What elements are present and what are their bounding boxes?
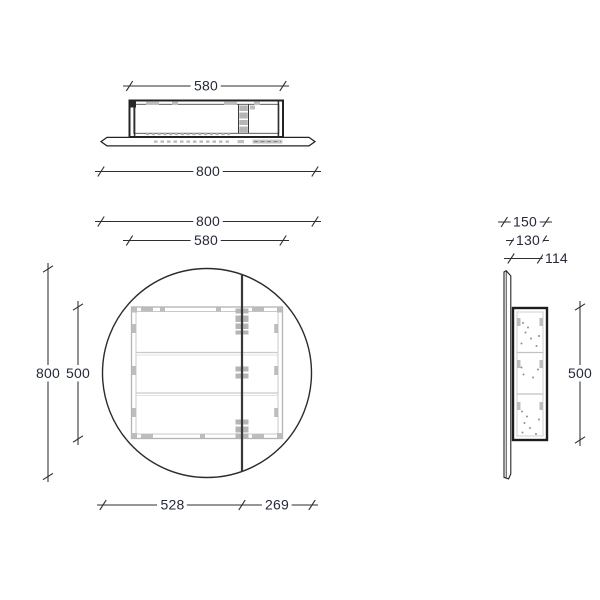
corner-fitting <box>277 433 283 439</box>
wall-fitting <box>540 318 544 326</box>
wall-fitting <box>224 102 237 105</box>
dim-side-depth-overall: 150 <box>498 214 552 230</box>
wall-fitting <box>160 307 165 311</box>
hinge-block <box>239 106 248 112</box>
top-view-cabinet-body <box>130 101 284 138</box>
side-view: 150 130 114 <box>498 214 592 479</box>
wall-fitting <box>254 102 260 105</box>
wall-fitting <box>274 366 278 375</box>
dim-front-overall-width: 800 <box>95 213 321 229</box>
dim-top-overall-width: 800 <box>95 163 321 179</box>
dim-label-800-mid: 800 <box>196 213 220 229</box>
dim-label-269: 269 <box>265 497 289 513</box>
corner-fitting <box>277 307 283 313</box>
wall-fitting <box>172 102 178 105</box>
mirror-panel-outline <box>504 271 511 479</box>
wall-fitting <box>517 360 521 368</box>
hinge-block <box>239 113 248 119</box>
wall-fitting <box>132 324 136 333</box>
wall-fitting <box>132 366 136 375</box>
wall-fitting <box>132 408 136 417</box>
corner-fitting <box>132 307 138 313</box>
wall-fitting <box>200 434 205 438</box>
dim-label-500-left: 500 <box>66 365 90 381</box>
front-view: 800 500 528 269 <box>36 263 318 513</box>
cabinet-outer-wall <box>130 101 284 138</box>
hinge-block <box>239 127 248 133</box>
dim-front-cabinet-height: 500 <box>66 301 90 445</box>
dim-label-500-right: 500 <box>568 365 592 381</box>
dim-label-130: 130 <box>516 232 540 248</box>
cabinet-box-outline <box>513 308 547 440</box>
dim-label-580-top: 580 <box>194 78 218 94</box>
side-view-cabinet-box <box>513 308 547 440</box>
hinge-block <box>250 106 255 110</box>
dim-label-580-mid: 580 <box>194 232 218 248</box>
wall-fitting <box>274 408 278 417</box>
wall-fitting <box>274 324 278 333</box>
dim-front-overall-height: 800 <box>36 263 60 482</box>
technical-drawing-canvas: 580 <box>0 0 600 600</box>
drawing-svg: 580 <box>0 0 600 600</box>
wall-fitting <box>540 402 544 410</box>
dim-side-depth-inner: 114 <box>504 250 568 266</box>
dim-label-800-height: 800 <box>36 365 60 381</box>
top-view-mirror-plate <box>101 137 315 146</box>
wall-fitting <box>216 307 221 311</box>
side-view-mirror-panel <box>504 271 511 479</box>
dim-side-depth-cabinet: 130 <box>506 232 549 248</box>
dim-side-cabinet-height: 500 <box>568 301 592 446</box>
hinge-block <box>239 120 248 125</box>
dim-label-800-top: 800 <box>196 163 220 179</box>
wall-fitting <box>540 360 544 368</box>
wall-fitting <box>517 402 521 410</box>
dim-front-bottom: 528 269 <box>97 497 318 513</box>
plate-fitting <box>238 140 245 143</box>
top-view: 580 <box>95 78 321 180</box>
front-view-width-dims: 800 580 <box>95 213 321 248</box>
wall-fitting <box>141 307 153 311</box>
dim-top-cabinet-width: 580 <box>123 78 289 94</box>
wall-fitting <box>252 307 264 311</box>
wall-fitting <box>146 102 159 105</box>
dim-label-150: 150 <box>513 214 537 230</box>
corner-fitting <box>130 101 136 108</box>
wall-fitting <box>252 434 264 438</box>
wall-fitting <box>517 318 521 326</box>
dim-label-528: 528 <box>161 497 185 513</box>
corner-fitting <box>132 433 138 439</box>
wall-fitting <box>141 434 153 438</box>
dim-label-114: 114 <box>545 250 568 266</box>
dim-front-cabinet-width: 580 <box>123 232 289 248</box>
